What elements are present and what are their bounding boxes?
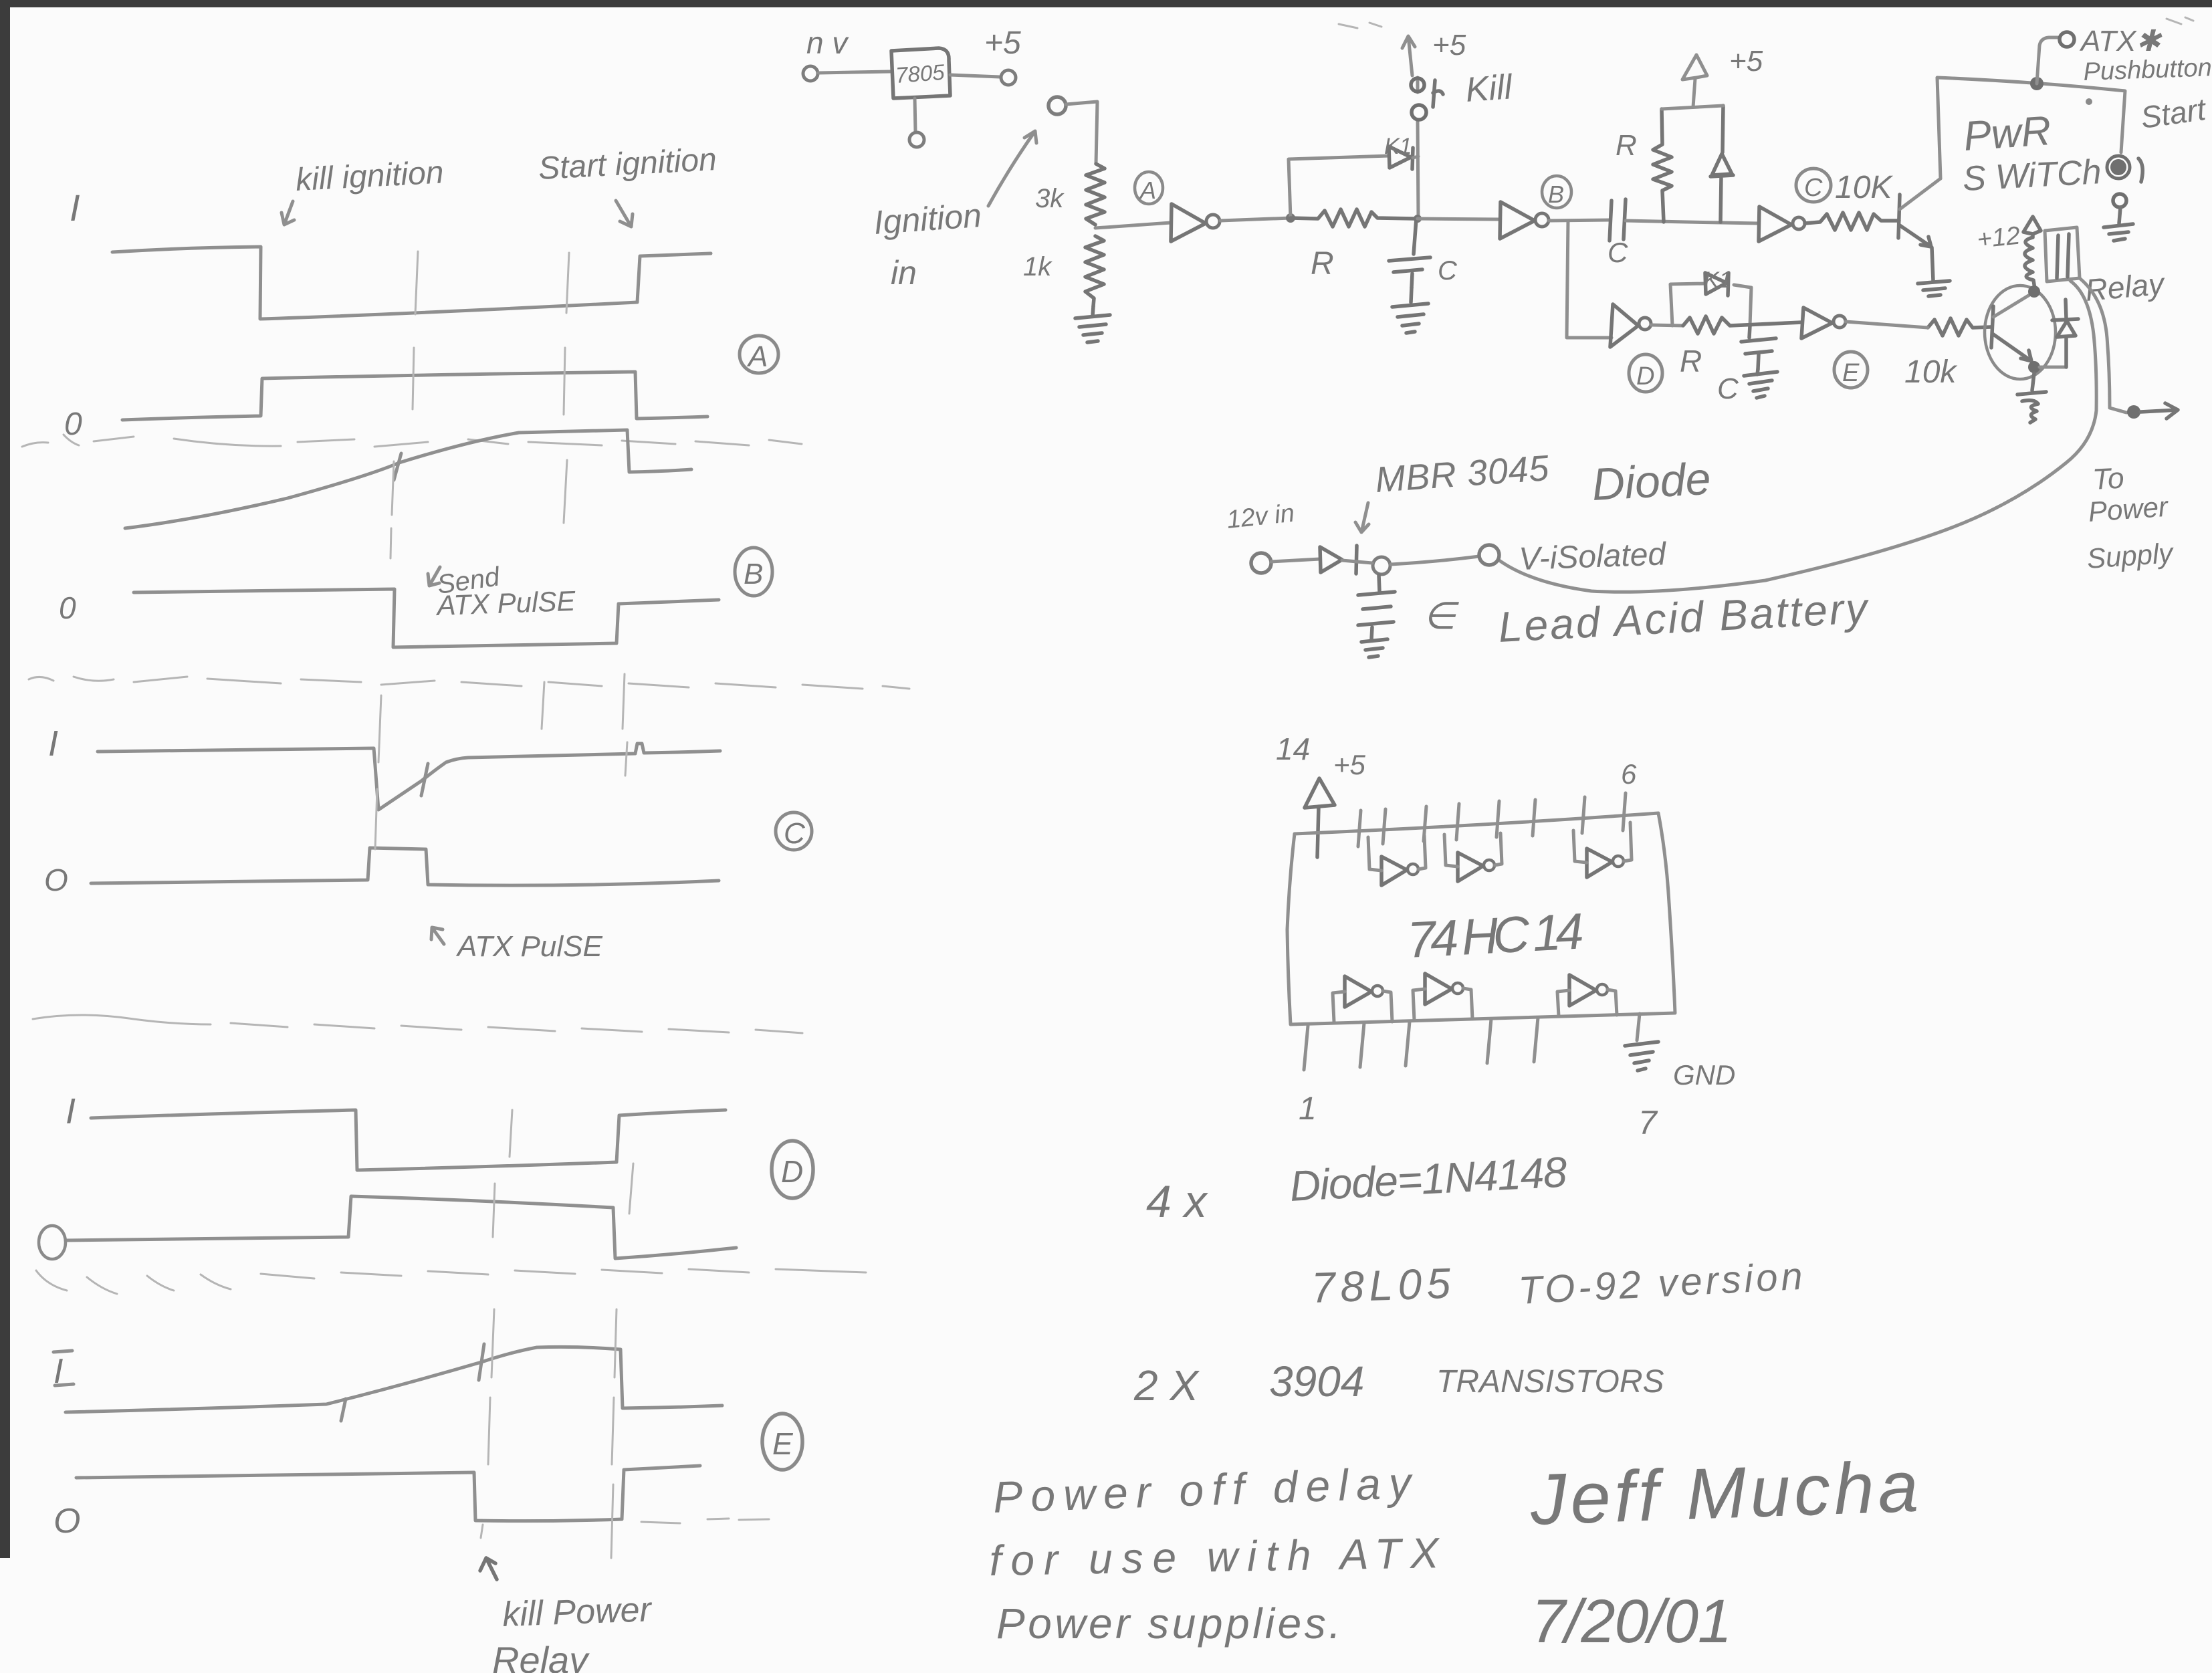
svg-text:A: A	[1139, 177, 1156, 204]
svg-text:Relay: Relay	[492, 1639, 590, 1673]
svg-text:6: 6	[1621, 758, 1637, 790]
svg-text:A: A	[746, 340, 768, 373]
svg-text:Supply: Supply	[2086, 537, 2175, 574]
svg-text:ATX PulSE: ATX PulSE	[435, 585, 576, 621]
svg-text:O: O	[44, 863, 68, 897]
svg-text:C: C	[784, 817, 806, 850]
svg-text:D: D	[1636, 362, 1654, 391]
svg-text:O: O	[53, 1502, 80, 1541]
svg-text:kill Power: kill Power	[502, 1590, 653, 1634]
svg-text:Jeff Mucha: Jeff Mucha	[1529, 1446, 1920, 1540]
svg-text:7/20/01: 7/20/01	[1531, 1587, 1732, 1656]
svg-text:B: B	[744, 558, 763, 590]
svg-text:C: C	[1438, 256, 1458, 286]
svg-text:R: R	[1680, 344, 1702, 378]
svg-text:78L05: 78L05	[1311, 1259, 1452, 1312]
svg-text:+5: +5	[1432, 29, 1466, 62]
svg-text:1: 1	[1299, 1091, 1317, 1127]
svg-text:To: To	[2092, 462, 2125, 496]
svg-text:D: D	[781, 1154, 803, 1189]
svg-text:74 HC 14: 74 HC 14	[1406, 903, 1585, 969]
svg-text:10k: 10k	[1904, 354, 1958, 390]
svg-text:V-iSolated: V-iSolated	[1519, 536, 1668, 577]
svg-text:in: in	[891, 254, 917, 292]
svg-text:B: B	[1548, 181, 1564, 208]
svg-text:3k: 3k	[1035, 184, 1065, 213]
svg-text:I: I	[48, 723, 58, 764]
svg-text:2 X: 2 X	[1133, 1361, 1200, 1410]
svg-text:E: E	[772, 1426, 794, 1461]
svg-text:K1: K1	[1704, 267, 1732, 293]
svg-text:Power supplies.: Power supplies.	[996, 1599, 1341, 1648]
svg-text:Ignition: Ignition	[873, 197, 983, 241]
svg-text:n v: n v	[806, 25, 849, 60]
svg-text:1k: 1k	[1023, 252, 1053, 282]
svg-text:I: I	[70, 187, 80, 229]
svg-text:4 x: 4 x	[1146, 1176, 1208, 1227]
svg-text:+12: +12	[1976, 221, 2022, 254]
svg-text:K1: K1	[1384, 134, 1412, 159]
svg-text:TRANSISTORS: TRANSISTORS	[1436, 1364, 1664, 1400]
svg-text:14: 14	[1276, 732, 1310, 766]
svg-text:ATX PulSE: ATX PulSE	[455, 930, 602, 963]
svg-text:E: E	[1842, 359, 1860, 387]
svg-text:3904: 3904	[1269, 1357, 1364, 1406]
svg-text:GND: GND	[1673, 1059, 1735, 1091]
svg-text:Kill: Kill	[1464, 68, 1515, 110]
svg-text:S WiTCh: S WiTCh	[1962, 152, 2102, 199]
svg-text:ATX✱: ATX✱	[2079, 25, 2163, 58]
svg-text:∈: ∈	[1423, 594, 1459, 637]
svg-text:+5: +5	[984, 25, 1021, 61]
svg-text:PwR: PwR	[1962, 108, 2052, 160]
svg-text:R: R	[1616, 129, 1637, 162]
svg-text:7: 7	[1638, 1104, 1658, 1141]
svg-text:10K: 10K	[1835, 170, 1893, 205]
svg-text:Power: Power	[2087, 491, 2170, 528]
svg-text:C: C	[1804, 174, 1823, 202]
svg-text:+5: +5	[1333, 749, 1366, 780]
svg-text:+5: +5	[1729, 45, 1763, 78]
svg-text:R: R	[1311, 246, 1334, 282]
svg-text:C: C	[1717, 372, 1739, 405]
svg-text:Pushbutton: Pushbutton	[2083, 53, 2212, 86]
svg-text:7805: 7805	[895, 60, 946, 88]
svg-text:0: 0	[59, 590, 76, 625]
svg-text:I: I	[66, 1091, 76, 1131]
svg-text:Diode: Diode	[1591, 453, 1712, 510]
svg-text:C: C	[1608, 237, 1628, 268]
